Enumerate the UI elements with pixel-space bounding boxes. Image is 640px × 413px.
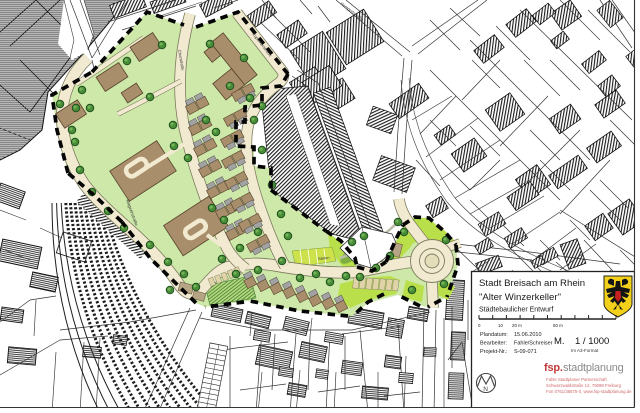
svg-text:Im A3-Format: Im A3-Format (571, 348, 599, 353)
svg-text:10: 10 (498, 323, 503, 328)
svg-text:S-09-071: S-09-071 (514, 349, 537, 355)
svg-text:Projekt-Nr.:: Projekt-Nr.: (480, 349, 508, 355)
svg-text:stadtplanung: stadtplanung (563, 362, 624, 374)
svg-text:fsp.: fsp. (544, 362, 563, 374)
svg-text:Schwarzwaldstraße 12, 79098 Fr: Schwarzwaldstraße 12, 79098 Freiburg (546, 383, 622, 388)
svg-text:N: N (483, 386, 488, 393)
svg-text:Fahle/Schreiser: Fahle/Schreiser (514, 341, 553, 347)
svg-text:1 / 1000: 1 / 1000 (575, 336, 609, 347)
svg-text:15.06.2010: 15.06.2010 (514, 332, 542, 338)
svg-text:Fon 0761/36875-0, www.fsp-stad: Fon 0761/36875-0, www.fsp-stadtplanung.d… (546, 389, 632, 394)
svg-text:"Alter Winzerkeller": "Alter Winzerkeller" (479, 292, 561, 303)
svg-text:Plandatum:: Plandatum: (480, 332, 508, 338)
svg-text:Städtebaulicher Entwurf: Städtebaulicher Entwurf (479, 307, 553, 314)
svg-text:Fahle Stadtplaner Partnerschaf: Fahle Stadtplaner Partnerschaft (546, 377, 607, 382)
svg-text:20 m: 20 m (512, 323, 522, 328)
svg-text:Bearbeiter:: Bearbeiter: (480, 341, 507, 347)
svg-text:M.: M. (554, 336, 565, 347)
svg-text:50 m: 50 m (553, 323, 563, 328)
svg-text:Stadt Breisach am Rhein: Stadt Breisach am Rhein (479, 278, 585, 289)
